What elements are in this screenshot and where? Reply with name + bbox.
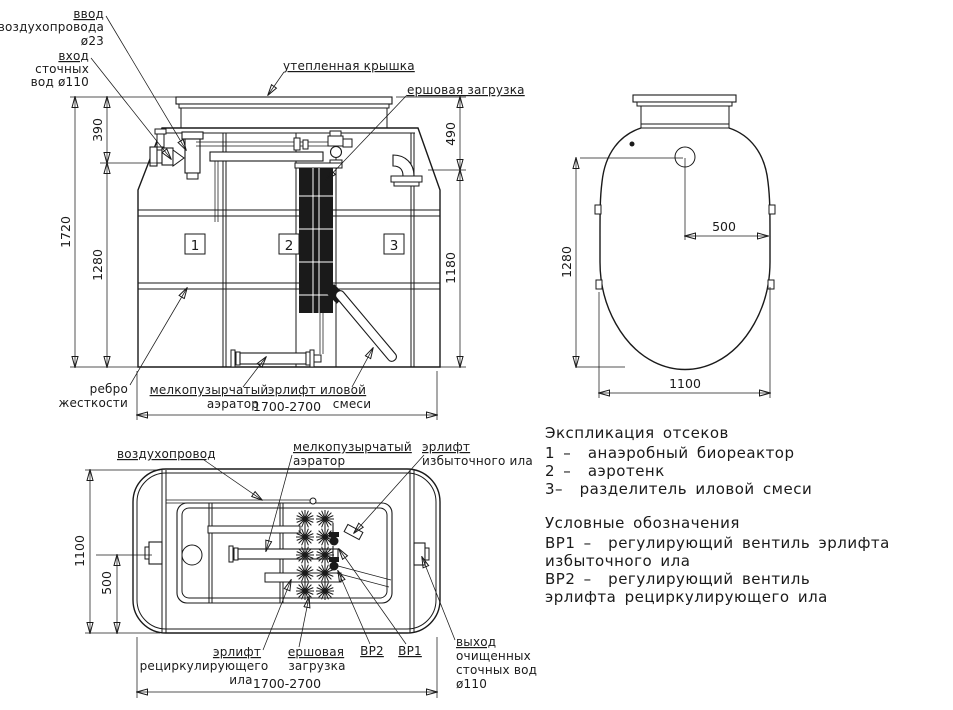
section-view: 1 2 3 <box>0 7 525 420</box>
dim-490: 490 <box>443 122 458 146</box>
airlift-valve-assembly <box>328 131 352 165</box>
label-brush-media: ершовая загрузка <box>407 83 525 97</box>
dim-1720: 1720 <box>58 216 73 248</box>
label-sludge-airlift-line1: эрлифт иловой <box>268 383 366 397</box>
dim-plan-1100: 1100 <box>72 535 87 567</box>
label-excess-airlift-line1: эрлифт <box>422 440 470 454</box>
label-sludge-airlift-line2: смеси <box>333 397 371 411</box>
dim-1180: 1180 <box>443 252 458 284</box>
dim-plan-500: 500 <box>99 571 114 595</box>
outlet-elbow <box>391 155 422 186</box>
valve-vr2 <box>330 562 339 571</box>
label-sewage-inlet-line2: сточных <box>35 62 89 76</box>
label-recirc-airlift-line1: эрлифт <box>213 645 261 659</box>
label-outlet-line2: очищенных <box>456 649 531 663</box>
legend-symbol-vr1-line2: избыточного ила <box>545 552 690 570</box>
label-valve-vr2: ВР2 <box>360 644 384 658</box>
legend-compartment-3: 3– разделитель иловой смеси <box>545 480 812 498</box>
label-insulated-cover: утепленная крышка <box>283 59 415 73</box>
dim-1280: 1280 <box>90 249 105 281</box>
label-outlet-line3: сточных вод <box>456 663 537 677</box>
insulated-cover <box>176 97 392 104</box>
dim-top-1100: 1100 <box>669 376 701 391</box>
top-view: 1280 500 1100 <box>559 95 775 398</box>
legend-symbol-vr2-line1: ВР2 – регулирующий вентиль <box>545 570 810 588</box>
label-plan-air-duct: воздухопровод <box>117 447 216 461</box>
legend-symbol-vr1-line1: ВР1 – регулирующий вентиль эрлифта <box>545 534 890 552</box>
label-air-inlet-line1: ввод <box>73 7 104 21</box>
label-plan-brush-line2: загрузка <box>288 659 345 673</box>
label-recirc-airlift-line2: рециркулирующего <box>140 659 269 673</box>
engineering-drawing: 1 2 3 <box>0 0 953 710</box>
dim-plan-length: 1700-2700 <box>253 676 321 691</box>
compartment-3-number: 3 <box>390 238 399 254</box>
label-rib-line2: жесткости <box>58 396 128 410</box>
label-plan-aerator-line1: мелкопузырчатый <box>293 440 412 454</box>
label-aerator-line2: аэратор <box>207 397 259 411</box>
vent-dot <box>630 142 635 147</box>
label-sewage-inlet-line1: вход <box>58 49 89 63</box>
fine-bubble-aerator <box>231 313 323 367</box>
legend-symbols-title: Условные обозначения <box>545 514 740 532</box>
inlet-assembly <box>150 129 203 179</box>
dim-top-500: 500 <box>712 219 736 234</box>
valve-vr1 <box>330 537 339 546</box>
legend-compartment-2: 2 – аэротенк <box>545 462 665 480</box>
label-outlet-line1: выход <box>456 635 496 649</box>
label-plan-aerator-line2: аэратор <box>293 454 345 468</box>
legend-symbol-vr2-line2: эрлифта рециркулирующего ила <box>545 588 828 606</box>
compartment-1-number: 1 <box>191 238 200 254</box>
compartment-markers: 1 2 3 <box>185 234 404 254</box>
label-recirc-airlift-line3: ила <box>229 673 252 687</box>
dim-top-1280: 1280 <box>559 246 574 278</box>
compartment-2-number: 2 <box>285 238 294 254</box>
top-view-dimensions: 1280 500 1100 <box>559 158 770 398</box>
label-aerator-line1: мелкопузырчатый <box>150 383 269 397</box>
label-valve-vr1: ВР1 <box>398 644 422 658</box>
section-labels: ввод воздухопровода ø23 вход сточных вод… <box>0 7 525 411</box>
dim-length-section: 1700-2700 <box>253 399 321 414</box>
label-rib-line1: ребро <box>90 382 128 396</box>
plan-view: 1100 500 1700-2700 воздухопровод мелкопу… <box>72 440 537 698</box>
label-sewage-inlet-line3: вод ø110 <box>31 75 89 89</box>
section-dimensions: 1720 390 1280 490 1180 1700-2700 <box>58 97 466 420</box>
label-air-inlet-line3: ø23 <box>81 34 104 48</box>
label-outlet-line4: ø110 <box>456 677 487 691</box>
legend-block: Экспликация отсеков 1 – анаэробный биоре… <box>545 424 890 606</box>
legend-compartment-1: 1 – анаэробный биореактор <box>545 444 795 462</box>
dim-390: 390 <box>90 118 105 142</box>
label-excess-airlift-line2: избыточного ила <box>422 454 533 468</box>
legend-compartments-title: Экспликация отсеков <box>545 424 729 442</box>
label-plan-brush-line1: ершовая <box>288 645 344 659</box>
label-air-inlet-line2: воздухопровода <box>0 20 104 34</box>
